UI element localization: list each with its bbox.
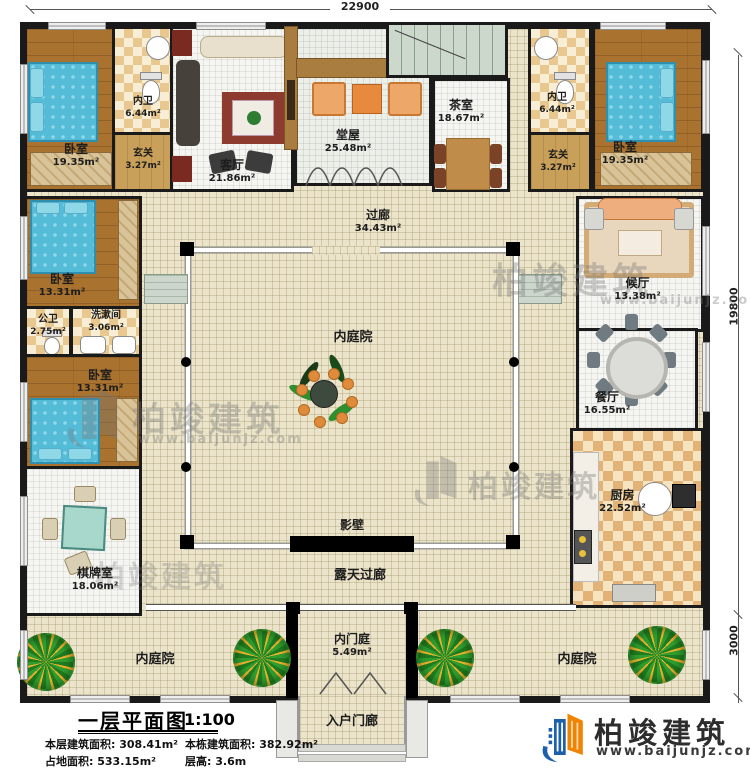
sofa [598, 198, 682, 220]
floor-plan-canvas: 22900 19800 3000 上 [0, 0, 750, 775]
sofa-sectional [176, 60, 200, 146]
stat-label: 本层建筑面积: [45, 738, 115, 751]
room-label-bedroom-tl: 卧室 19.35m² [36, 142, 116, 170]
armchair [584, 208, 604, 230]
room-area: 25.48m² [298, 143, 398, 156]
watermark-logo [408, 452, 464, 508]
window [702, 60, 710, 134]
room-name: 过廊 [328, 208, 428, 223]
room-label-screen-wall: 影壁 [302, 518, 402, 533]
room-label-courtyard-bl: 内庭院 [110, 652, 200, 668]
stat-label: 本栋建筑面积: [185, 738, 255, 751]
window [70, 695, 130, 703]
room-area: 18.06m² [55, 581, 135, 594]
column-dot [181, 357, 191, 367]
entry-double-door [318, 670, 388, 696]
palm-tree [628, 626, 686, 684]
window [196, 22, 266, 30]
room-name: 客厅 [190, 158, 274, 173]
pillow [64, 202, 88, 214]
dimension-right-lower-value: 3000 [728, 611, 741, 671]
kitchen-sink [612, 584, 656, 602]
room-label-public-bath: 公卫 2.75m² [22, 314, 74, 338]
plant-pot [310, 380, 338, 408]
room-label-open-corridor: 露天过廊 [295, 568, 425, 584]
fruit [342, 378, 354, 390]
pillow [30, 102, 44, 132]
room-label-foyer-tl: 玄关 3.27m² [112, 148, 174, 172]
window [702, 630, 710, 680]
room-area: 19.35m² [36, 157, 116, 170]
column-dot [509, 357, 519, 367]
sink [146, 36, 170, 60]
wardrobe [118, 200, 138, 300]
window [702, 342, 710, 412]
room-name: 入户门廊 [304, 714, 400, 730]
room-name: 卧室 [60, 368, 140, 383]
room-area: 21.86m² [190, 173, 274, 186]
brand-url: www.baijunjz.com [596, 744, 750, 759]
room-name: 卧室 [22, 272, 102, 287]
fruit [328, 368, 340, 380]
room-area: 22.52m² [585, 503, 660, 516]
room-name: 影壁 [302, 518, 402, 533]
room-area: 3.06m² [70, 323, 142, 334]
pillow [660, 68, 674, 98]
burner [579, 550, 586, 557]
room-label-waiting: 候厅 13.38m² [590, 276, 685, 304]
room-name: 厨房 [585, 488, 660, 503]
room-label-bedroom-tr: 卧室 19.35m² [585, 140, 665, 168]
fruit [346, 396, 358, 408]
window [20, 382, 28, 442]
chair [490, 168, 502, 188]
window [600, 22, 666, 30]
room-area: 13.31m² [22, 287, 102, 300]
window [702, 226, 710, 296]
tv-cabinet [172, 156, 192, 182]
room-area: 6.44m² [523, 105, 591, 116]
room-area: 6.44m² [112, 109, 174, 120]
room-name: 内卫 [523, 92, 591, 105]
wall-corner [180, 535, 194, 549]
room-label-bath-tr: 内卫 6.44m² [523, 92, 591, 116]
courtyard-plant [296, 368, 352, 420]
hall-cabinet [287, 80, 295, 120]
pillow [38, 448, 62, 460]
stat-value: 382.92m² [259, 738, 318, 751]
window [160, 695, 230, 703]
pillow [30, 68, 44, 98]
room-label-courtyard-br: 内庭院 [532, 652, 622, 668]
toilet [44, 337, 60, 355]
chair [110, 518, 126, 540]
sink [534, 36, 558, 60]
fruit [308, 370, 320, 382]
room-name: 玄关 [524, 150, 592, 163]
burner [579, 536, 586, 543]
room-label-entry-porch: 入户门廊 [304, 714, 400, 730]
room-name: 公卫 [22, 314, 74, 327]
chair [434, 168, 446, 188]
toilet-tank [140, 72, 162, 80]
dining-chair [587, 352, 600, 368]
fridge [672, 484, 696, 508]
room-label-washroom: 洗漱间 3.06m² [70, 310, 142, 334]
game-table [61, 505, 107, 551]
fruit [298, 404, 310, 416]
room-area: 13.38m² [590, 291, 685, 304]
watermark: www.baijunjz.com [138, 432, 303, 447]
room-label-game: 棋牌室 18.06m² [55, 566, 135, 594]
room-label-corridor: 过廊 34.43m² [328, 208, 428, 236]
watermark: 柏竣建筑 [468, 462, 600, 506]
toilet-tank [554, 72, 576, 80]
room-area: 16.55m² [572, 405, 642, 418]
room-name: 茶室 [411, 98, 511, 113]
stat-floor-height: 层高: 3.6m [185, 753, 246, 769]
screen-wall [290, 536, 414, 552]
room-name: 内庭院 [532, 652, 622, 668]
room-area: 2.75m² [22, 327, 74, 338]
wall-corner [506, 535, 520, 549]
pillow [660, 102, 674, 132]
folding-door-arcs [304, 158, 404, 188]
chair [490, 144, 502, 164]
room-area: 34.43m² [328, 223, 428, 236]
porch-column [406, 700, 428, 758]
courtyard-steps [144, 274, 188, 304]
fruit [336, 412, 348, 424]
sink [112, 336, 136, 354]
room-area: 3.27m² [112, 161, 174, 172]
room-name: 堂屋 [298, 128, 398, 143]
fruit [296, 384, 308, 396]
window [560, 695, 630, 703]
window [20, 496, 28, 566]
dining-chair [625, 314, 638, 330]
room-name: 内门庭 [298, 632, 406, 647]
room-name: 内卫 [112, 96, 174, 109]
room-label-foyer-tr: 玄关 3.27m² [524, 150, 592, 174]
room-name: 玄关 [112, 148, 174, 161]
armchair [674, 208, 694, 230]
stat-floor-area: 本层建筑面积: 308.41m² [45, 736, 178, 752]
room-area: 18.67m² [411, 113, 511, 126]
room-name: 卧室 [585, 140, 665, 155]
chair [74, 486, 96, 502]
side-table [352, 84, 382, 114]
inner-wall-opening [312, 246, 380, 255]
chair [434, 144, 446, 164]
plan-scale: 1:100 [184, 710, 235, 729]
room-label-bedroom-bl: 卧室 13.31m² [60, 368, 140, 396]
fruit [314, 416, 326, 428]
stat-label: 占地面积: [45, 755, 93, 768]
room-name: 内庭院 [303, 330, 403, 346]
sink [80, 336, 106, 354]
armchair [312, 82, 346, 116]
window [48, 22, 106, 30]
sofa [200, 36, 288, 58]
room-label-living: 客厅 21.86m² [190, 158, 274, 186]
stat-value: 3.6m [215, 755, 246, 768]
stat-building-area: 本栋建筑面积: 382.92m² [185, 736, 318, 752]
room-name: 卧室 [36, 142, 116, 157]
room-label-inner-courtyard: 内庭院 [303, 330, 403, 346]
room-label-tea: 茶室 18.67m² [411, 98, 511, 126]
stat-land-area: 占地面积: 533.15m² [45, 753, 156, 769]
room-name: 内庭院 [110, 652, 200, 668]
room-label-kitchen: 厨房 22.52m² [585, 488, 660, 516]
window [20, 64, 28, 134]
room-label-inner-gate: 内门庭 5.49m² [298, 632, 406, 660]
room-name: 露天过廊 [295, 568, 425, 584]
window [20, 216, 28, 280]
stat-value: 533.15m² [97, 755, 156, 768]
room-area: 5.49m² [298, 647, 406, 660]
room-name: 候厅 [590, 276, 685, 291]
potted-plant [247, 111, 261, 125]
tv-cabinet [172, 30, 192, 56]
room-label-hall: 堂屋 25.48m² [298, 128, 398, 156]
porch-steps [298, 754, 406, 762]
window [20, 630, 28, 680]
dimension-line-right [738, 55, 739, 703]
chair [42, 518, 58, 540]
room-label-bedroom-ml: 卧室 13.31m² [22, 272, 102, 300]
room-label-dining: 餐厅 16.55m² [572, 390, 642, 418]
column-dot [181, 462, 191, 472]
room-area: 13.31m² [60, 383, 140, 396]
stat-label: 层高: [185, 755, 211, 768]
palm-tree [416, 629, 474, 687]
tea-table [446, 138, 490, 190]
room-label-bath-tl: 内卫 6.44m² [112, 96, 174, 120]
pillow [36, 202, 60, 214]
palm-tree [233, 629, 291, 687]
title-underline [78, 730, 218, 734]
window [450, 695, 520, 703]
room-name: 棋牌室 [55, 566, 135, 581]
room-area: 3.27m² [524, 163, 592, 174]
room-name: 洗漱间 [70, 310, 142, 323]
open-corridor-wall [146, 604, 576, 611]
room-area: 19.35m² [585, 155, 665, 168]
wall-corner [180, 242, 194, 256]
dimension-top-value: 22900 [330, 0, 390, 13]
room-name: 餐厅 [572, 390, 642, 405]
brand-logo-icon [536, 708, 590, 766]
stat-value: 308.41m² [119, 738, 178, 751]
